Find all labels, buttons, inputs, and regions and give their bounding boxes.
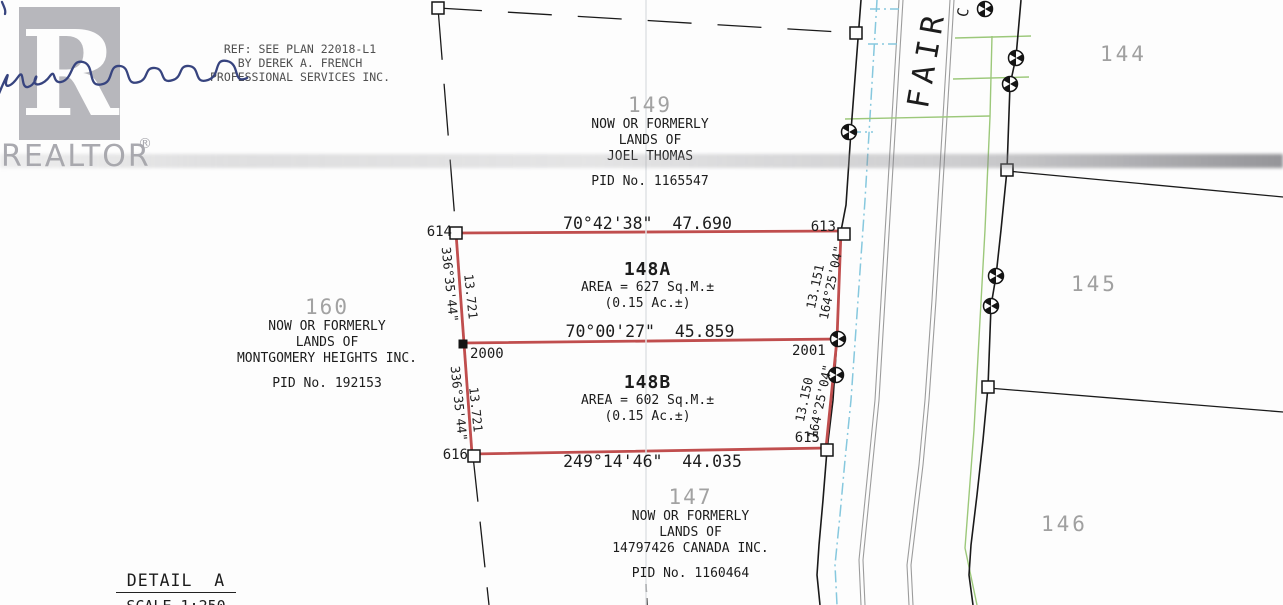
lot-148a-acres: (0.15 Ac.±) xyxy=(540,296,755,312)
parcel-144-number: 144 xyxy=(1100,42,1150,66)
lot-148b-label: 148B AREA = 602 Sq.M.± (0.15 Ac.±) xyxy=(540,372,755,425)
utility-lines-green xyxy=(845,36,1031,605)
point-2001-label: 2001 xyxy=(792,343,836,359)
point-615-label: 615 xyxy=(788,430,820,446)
parcel-160-line3: MONTGOMERY HEIGHTS INC. xyxy=(222,351,432,367)
parcel-147-line1: NOW OR FORMERLY xyxy=(588,509,793,525)
parcel-160-line2: LANDS OF xyxy=(222,335,432,351)
parcel-160-label: 160 NOW OR FORMERLY LANDS OF MONTGOMERY … xyxy=(222,295,432,391)
realtor-wordmark: REALTOR xyxy=(1,139,151,174)
dimension-south-line: 249°14'46" 44.035 xyxy=(495,452,810,471)
parcel-147-number: 147 xyxy=(588,485,793,509)
parcel-149-number: 149 xyxy=(545,93,755,117)
parcel-147-label: 147 NOW OR FORMERLY LANDS OF 14797426 CA… xyxy=(588,485,793,581)
parcel-160-pid: PID No. 192153 xyxy=(222,376,432,392)
point-616-label: 616 xyxy=(436,447,468,463)
lot-148a-label: 148A AREA = 627 Sq.M.± (0.15 Ac.±) xyxy=(540,259,755,312)
parcel-149-label: 149 NOW OR FORMERLY LANDS OF JOEL THOMAS… xyxy=(545,93,755,189)
parcel-147-line2: LANDS OF xyxy=(588,525,793,541)
point-613-label: 613 xyxy=(802,219,836,235)
parcel-149-line3: JOEL THOMAS xyxy=(545,149,755,165)
parcel-146-number: 146 xyxy=(1041,512,1091,536)
lot145-146-boundary xyxy=(988,388,1283,412)
parcel-147-line3: 14797426 CANADA INC. xyxy=(588,541,793,557)
detail-a-title: DETAIL A xyxy=(116,571,236,593)
lot-148a-name: 148A xyxy=(540,259,755,280)
detail-a-scale: SCALE 1:250 xyxy=(117,597,235,605)
parcel-149-line2: LANDS OF xyxy=(545,133,755,149)
signature-scrawl xyxy=(0,0,268,115)
parcel-160-line1: NOW OR FORMERLY xyxy=(222,319,432,335)
lot-148b-area: AREA = 602 Sq.M.± xyxy=(540,393,755,409)
dimension-middle-line: 70°00'27" 45.859 xyxy=(495,322,805,341)
lot-148a-area: AREA = 627 Sq.M.± xyxy=(540,280,755,296)
dimension-north-line: 70°42'38" 47.690 xyxy=(495,214,800,233)
lot-148b-acres: (0.15 Ac.±) xyxy=(540,409,755,425)
survey-plan-canvas: R REALTOR ® REF: SEE PLAN 22018-L1 BY DE… xyxy=(0,0,1283,605)
registered-trademark-symbol: ® xyxy=(138,136,152,152)
point-2000-label: 2000 xyxy=(470,346,518,362)
waterline-cyan xyxy=(835,0,899,605)
parcel-145-number: 145 xyxy=(1071,272,1121,296)
lot144-145-boundary xyxy=(1007,171,1283,197)
street-name-cutoff-letter: C xyxy=(953,0,974,18)
point-614-label: 614 xyxy=(418,224,452,240)
parcel-147-pid: PID No. 1160464 xyxy=(588,566,793,582)
lot-148b-name: 148B xyxy=(540,372,755,393)
parcel-160-number: 160 xyxy=(222,295,432,319)
parcel-149-line1: NOW OR FORMERLY xyxy=(545,117,755,133)
parcel-149-pid: PID No. 1165547 xyxy=(545,174,755,190)
